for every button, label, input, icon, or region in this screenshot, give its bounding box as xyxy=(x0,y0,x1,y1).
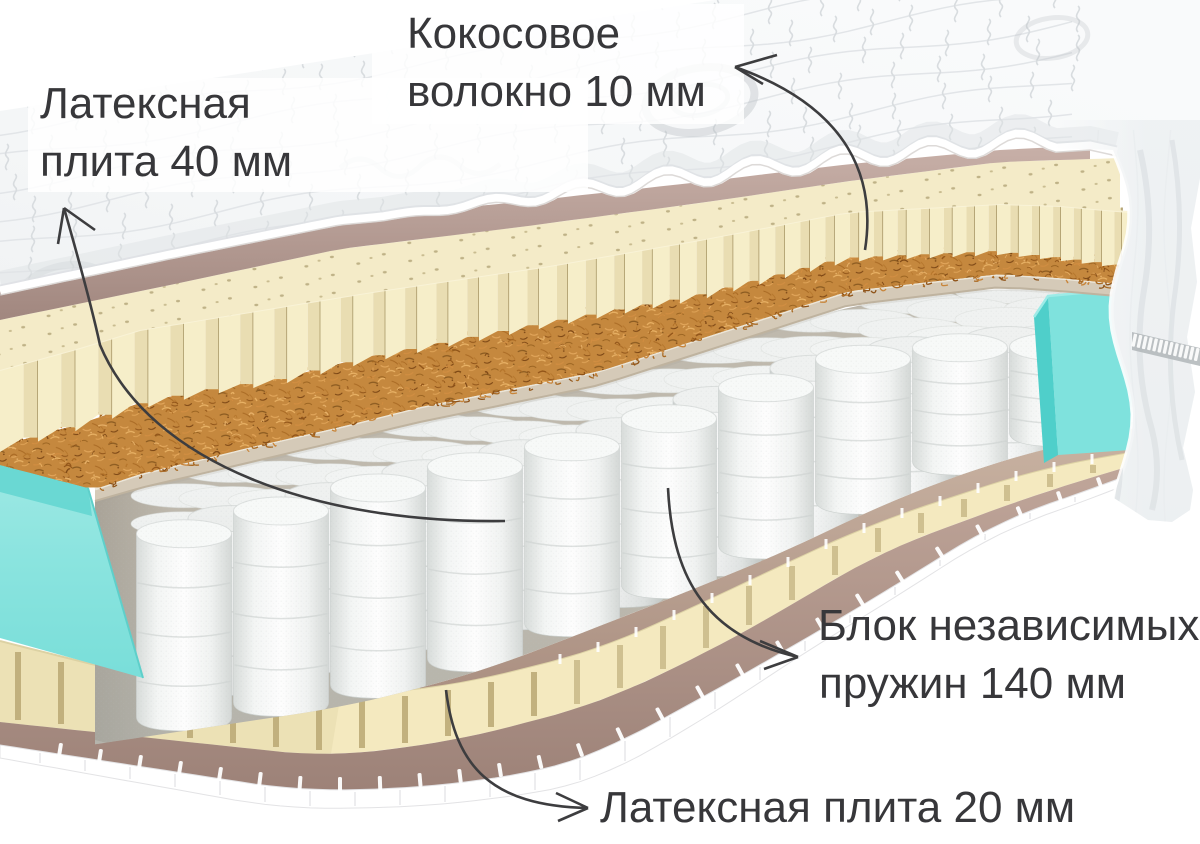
svg-text:пружин 140 мм: пружин 140 мм xyxy=(819,659,1126,708)
svg-text:плита 40 мм: плита 40 мм xyxy=(40,137,292,186)
svg-text:волокно 10 мм: волокно 10 мм xyxy=(407,67,706,116)
svg-text:Латексная плита 20 мм: Латексная плита 20 мм xyxy=(600,783,1075,832)
svg-text:Блок независимых: Блок независимых xyxy=(818,601,1199,650)
svg-text:Кокосовое: Кокосовое xyxy=(407,9,620,58)
svg-text:Латексная: Латексная xyxy=(40,79,251,128)
